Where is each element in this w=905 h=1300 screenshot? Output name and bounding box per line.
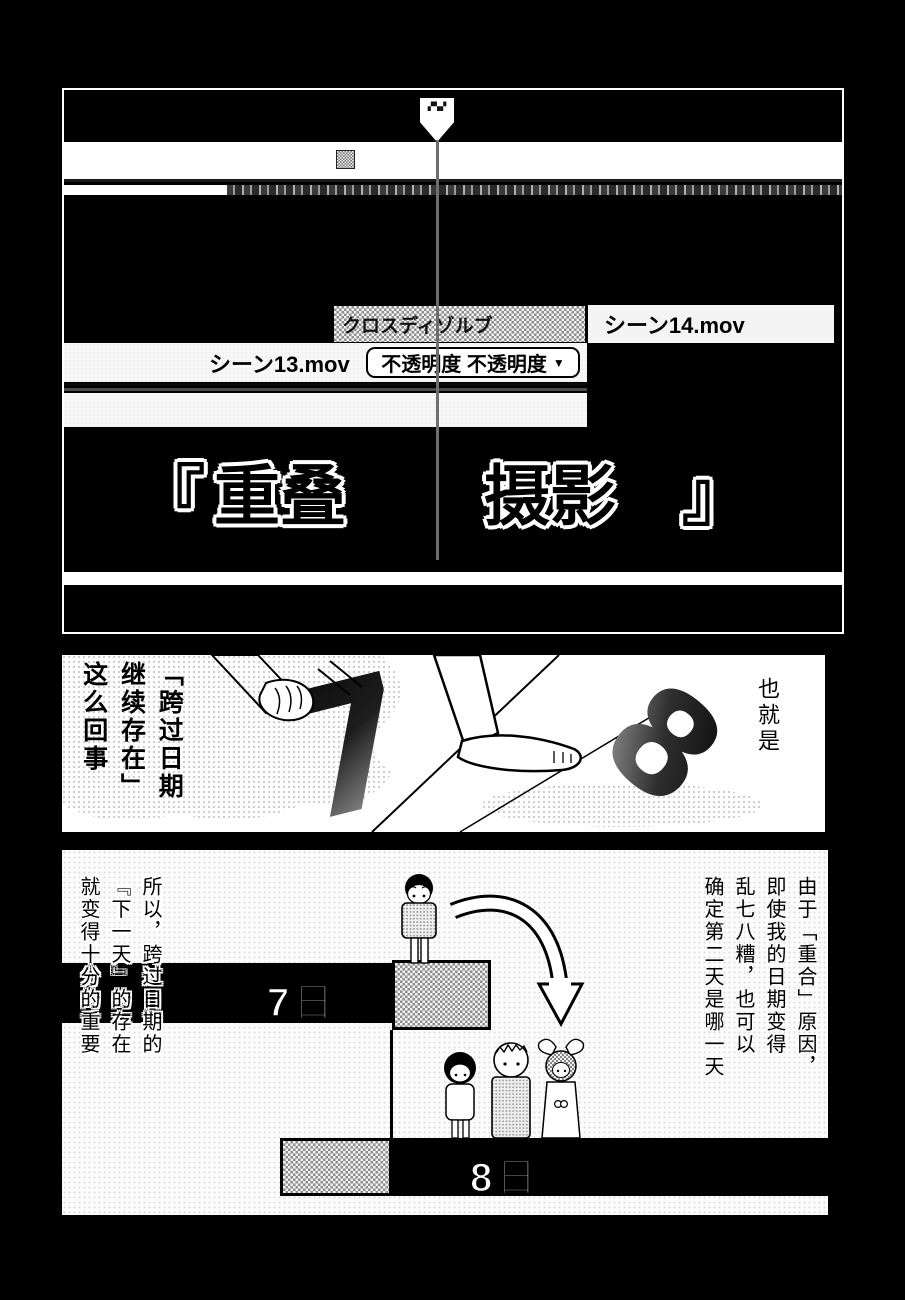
video-editor-panel: ▞▚▞ クロスディゾルブ シーン14.mov シーン13.mov 不透明度 不透… [62,88,844,634]
girl-figure [444,1052,476,1138]
editor-bottom-bar [64,572,842,585]
panel-day-diagram: 由于「重合」原因， 即使我的日期变得 乱七八糟，也可以 确定第二天是哪一天 所以… [62,850,828,1215]
narration-right-col-2: 即使我的日期变得 [758,876,789,1176]
day7-label: 7日 [267,970,337,1028]
narration-right: 由于「重合」原因， 即使我的日期变得 乱七八糟，也可以 确定第二天是哪一天 [696,876,820,1176]
narration-left-col-1: 所以，跨过日期的 [134,876,165,1196]
day8-label: 8日 [470,1145,540,1203]
playhead-line[interactable] [436,140,439,560]
day-boundary-line [390,1030,393,1138]
opacity-dropdown-button[interactable]: 不透明度 不透明度 ▼ [366,347,580,378]
boy-leg-2 [421,938,428,963]
caption-that-is: 也就是 [751,677,783,817]
opacity-dropdown-label: 不透明度 不透明度 [381,348,547,377]
boy-shirt [402,903,436,938]
caption-step-over-dates: 「跨过日期 继续存在」 这么回事 [72,661,185,829]
title-open-bracket: 『 [139,448,205,544]
curved-arrow-icon [447,885,607,1045]
narration-left-col-2: 『下一天』的存在 [103,876,134,1196]
title-word-overlap: 重叠 [214,448,346,544]
day8-start-block [280,1138,392,1196]
boy-leg [411,938,418,963]
narration-left-col-3: 就变得十分的重要 [72,876,103,1196]
clip-cross-dissolve-label: クロスディゾルブ [342,311,493,338]
man-figure [492,1043,530,1138]
ribbon-girl-figure [539,1039,584,1138]
track-divider [64,383,587,393]
ruler-marker-chip [336,150,355,169]
title-close-bracket: 』 [682,448,748,544]
caption-col-3: 这么回事 [76,661,110,829]
narration-right-col-1: 由于「重合」原因， [789,876,820,1176]
panel-step-over-dates: 7 8 「跨过日期 继续存在」 这么回事 也就是 [62,655,825,832]
lower-track-bar[interactable] [64,393,587,427]
timeline-minimap-track[interactable] [64,185,842,195]
title-word-shoot: 摄影 [484,448,616,544]
timeline-ruler[interactable] [64,142,842,182]
narration-right-col-4: 确定第二天是哪一天 [696,876,727,1176]
family-figures [430,1038,592,1138]
clip-scene13-label: シーン13.mov [209,347,350,379]
playhead-marker-icon[interactable]: ▞▚▞ [420,98,454,142]
narration-right-col-3: 乱七八糟，也可以 [727,876,758,1176]
playhead-flag-glyphs: ▞▚▞ [428,102,446,111]
minimap-filled-region [227,185,842,195]
caption-col-1: 「跨过日期 [152,661,186,829]
clip-scene14[interactable]: シーン14.mov [588,305,834,343]
clip-scene14-label: シーン14.mov [604,308,745,340]
narration-left: 所以，跨过日期的 『下一天』的存在 就变得十分的重要 [72,876,165,1196]
boy-figure [392,873,446,965]
chevron-down-icon: ▼ [553,356,565,370]
clip-cross-dissolve[interactable]: クロスディゾルブ [333,305,586,343]
caption-col-2: 继续存在」 [114,661,148,829]
foot [458,735,581,771]
effect-title: 『 重叠 摄影 』 [64,448,842,544]
